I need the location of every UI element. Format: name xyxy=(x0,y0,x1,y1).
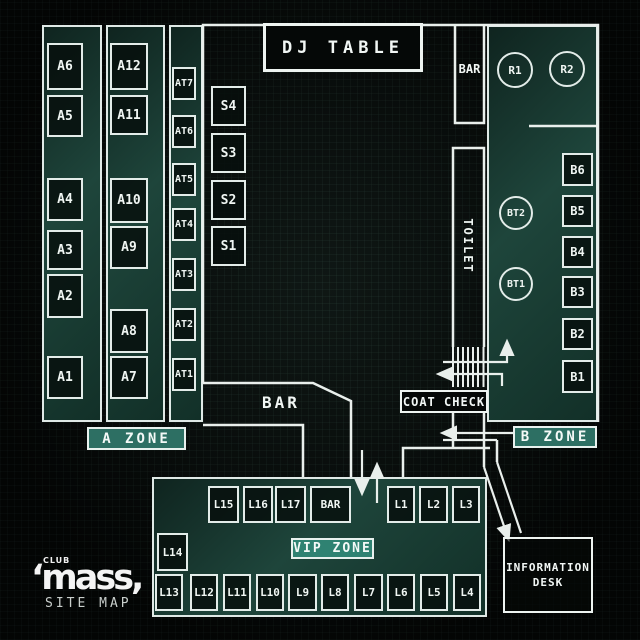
seat-at4: AT4 xyxy=(172,208,196,241)
main-floor-wall xyxy=(203,25,598,422)
seat-b5: B5 xyxy=(562,195,593,227)
seat-l9: L9 xyxy=(288,574,317,611)
logo-mass-text: ‘mass, xyxy=(31,565,151,591)
seat-bar: BAR xyxy=(310,486,351,523)
seat-l15: L15 xyxy=(208,486,239,523)
b-zone-label: B ZONE xyxy=(513,426,597,448)
seat-a8: A8 xyxy=(110,309,148,353)
seat-l14: L14 xyxy=(157,533,188,571)
bar-corridor-wall-bottom xyxy=(203,425,303,477)
mid-bar-label: BAR xyxy=(262,393,300,412)
seat-at6: AT6 xyxy=(172,115,196,148)
top-bar-label: BAR xyxy=(455,62,484,76)
seat-s1: S1 xyxy=(211,226,246,266)
seat-a4: A4 xyxy=(47,178,83,221)
seat-s3: S3 xyxy=(211,133,246,173)
info-desk-label-line2: DESK xyxy=(533,575,564,590)
arrow-left-upper xyxy=(440,374,502,386)
seat-a1: A1 xyxy=(47,356,83,399)
seat-at7: AT7 xyxy=(172,67,196,100)
site-map-title: SITE MAP xyxy=(45,596,151,611)
seat-a6: A6 xyxy=(47,43,83,90)
a-zone-label: A ZONE xyxy=(87,427,186,450)
seat-at2: AT2 xyxy=(172,308,196,341)
seat-l6: L6 xyxy=(387,574,415,611)
seat-l8: L8 xyxy=(321,574,349,611)
seat-b1: B1 xyxy=(562,360,593,393)
seat-b4: B4 xyxy=(562,236,593,268)
seat-l2: L2 xyxy=(419,486,448,523)
dj-table: DJ TABLE xyxy=(263,23,423,72)
seat-l13: L13 xyxy=(155,574,183,611)
seat-l10: L10 xyxy=(256,574,284,611)
seat-b2: B2 xyxy=(562,318,593,350)
table-r1: R1 xyxy=(497,52,533,88)
seat-b3: B3 xyxy=(562,276,593,308)
seat-l5: L5 xyxy=(420,574,448,611)
table-bt1: BT1 xyxy=(499,267,533,301)
table-r2: R2 xyxy=(549,51,585,87)
seat-a5: A5 xyxy=(47,95,83,137)
seat-l11: L11 xyxy=(223,574,251,611)
seat-l17: L17 xyxy=(275,486,306,523)
arrow-to-info-desk xyxy=(484,467,508,538)
table-bt2: BT2 xyxy=(499,196,533,230)
seat-l3: L3 xyxy=(452,486,480,523)
seat-at3: AT3 xyxy=(172,258,196,291)
seat-at1: AT1 xyxy=(172,358,196,391)
dj-table-label: DJ TABLE xyxy=(282,38,404,58)
seat-b6: B6 xyxy=(562,153,593,186)
seat-l12: L12 xyxy=(190,574,218,611)
seat-l16: L16 xyxy=(243,486,273,523)
toilet-label: TOILET xyxy=(440,218,496,274)
seat-a7: A7 xyxy=(110,356,148,399)
seat-a12: A12 xyxy=(110,43,148,90)
seat-a9: A9 xyxy=(110,226,148,269)
coat-check-label: COAT CHECK xyxy=(403,395,485,409)
info-desk-label-line1: INFORMATION xyxy=(506,560,590,575)
seat-a3: A3 xyxy=(47,230,83,270)
seat-at5: AT5 xyxy=(172,163,196,196)
seat-l7: L7 xyxy=(354,574,383,611)
club-mass-logo: CLUB ‘mass, SITE MAP xyxy=(31,556,151,611)
seat-a11: A11 xyxy=(110,95,148,135)
seat-a2: A2 xyxy=(47,274,83,318)
seat-l4: L4 xyxy=(453,574,481,611)
seat-l1: L1 xyxy=(387,486,415,523)
seat-a10: A10 xyxy=(110,178,148,223)
stairs-hatching xyxy=(453,347,484,387)
vip-zone-label: VIP ZONE xyxy=(291,538,374,559)
seat-s4: S4 xyxy=(211,86,246,126)
coat-check: COAT CHECK xyxy=(400,390,488,413)
arrow-to-info-desk-line2 xyxy=(497,462,521,533)
vip-corridor-wall xyxy=(403,448,490,477)
information-desk: INFORMATION DESK xyxy=(503,537,593,613)
seat-s2: S2 xyxy=(211,180,246,220)
club-site-map: DJ TABLE BAR BAR TOILET COAT CHECK INFOR… xyxy=(0,0,640,640)
